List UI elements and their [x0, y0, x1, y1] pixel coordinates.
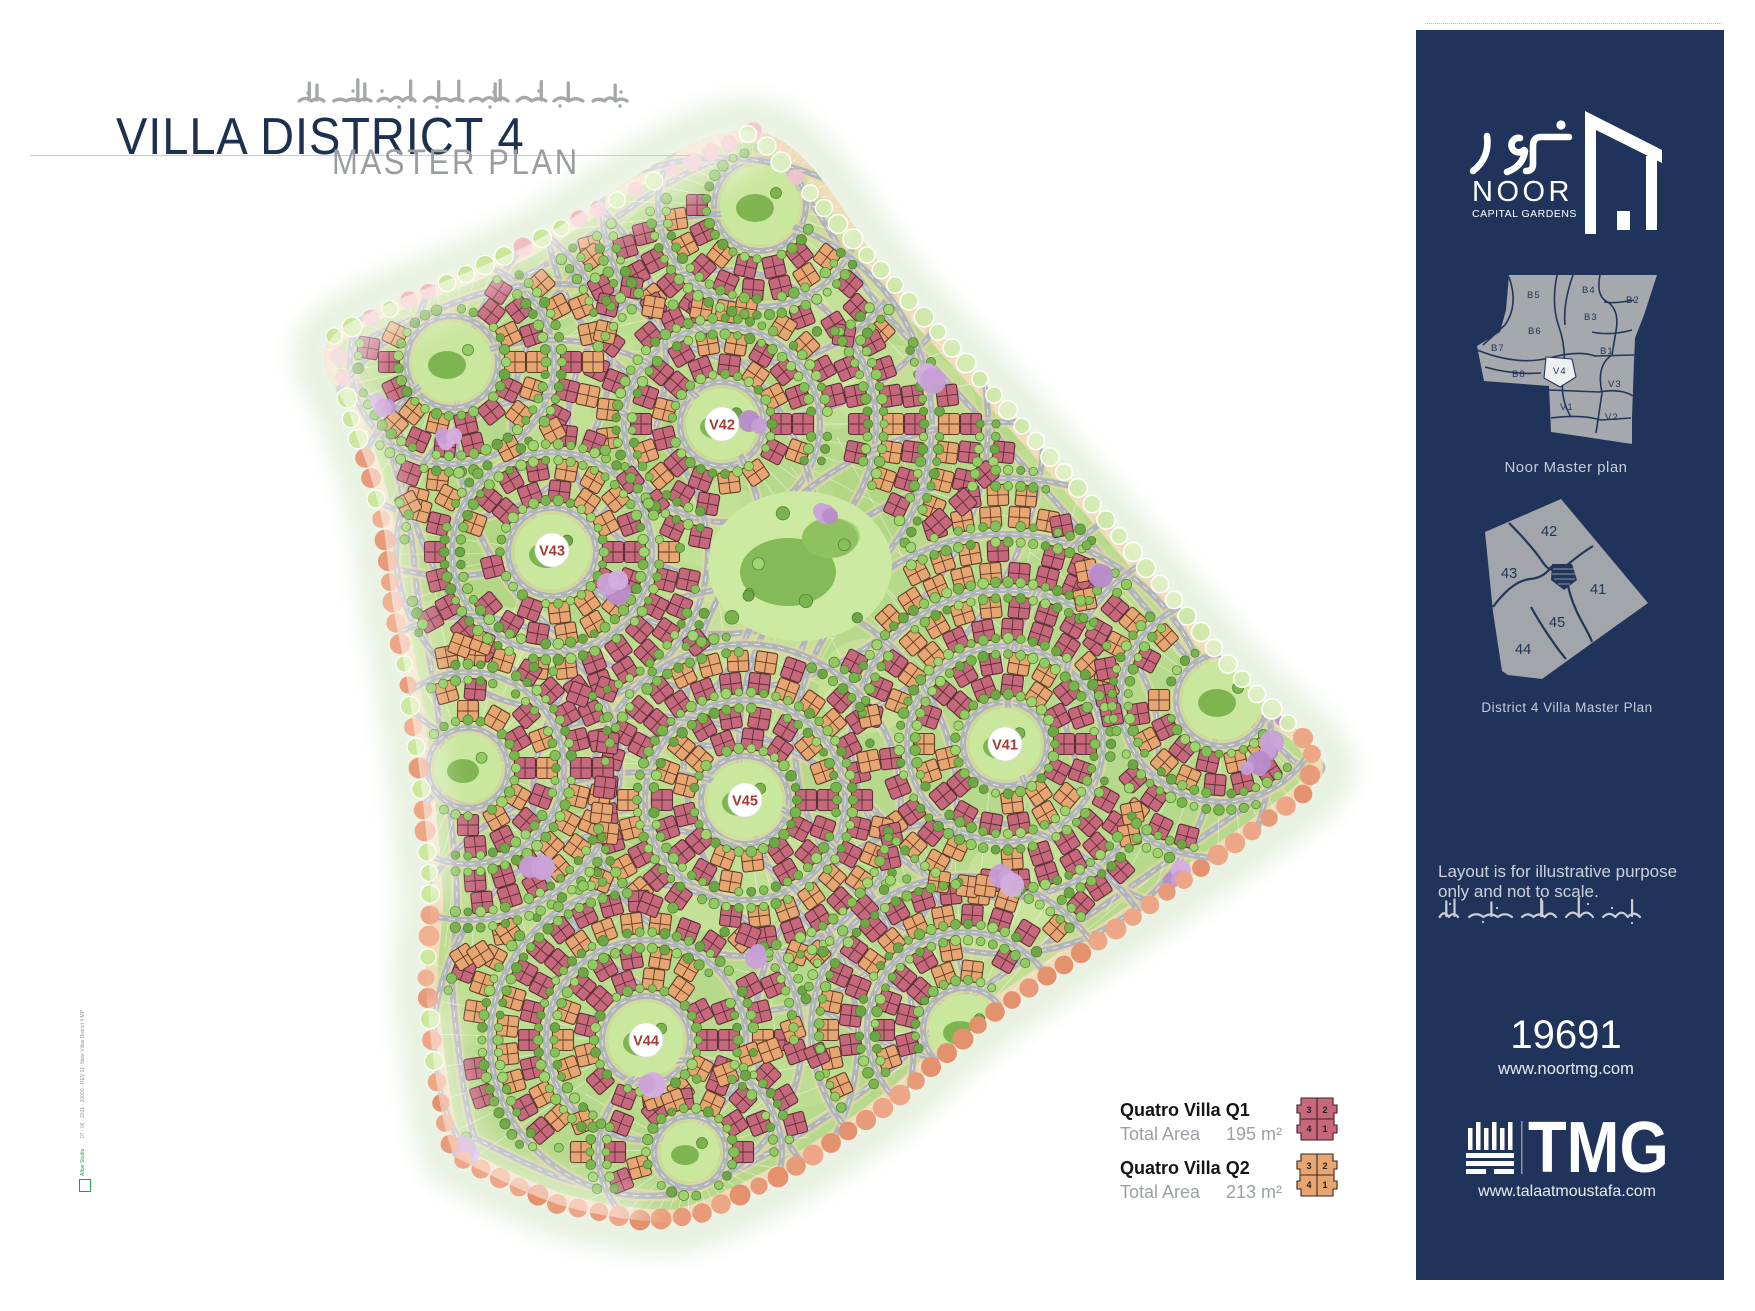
svg-text:41: 41: [1590, 582, 1606, 598]
svg-text:42: 42: [1541, 524, 1557, 540]
svg-text:44: 44: [1515, 642, 1531, 658]
svg-text:43: 43: [1501, 566, 1517, 582]
svg-text:Noor Master plan: Noor Master plan: [1504, 459, 1627, 476]
svg-text:B6: B6: [1528, 326, 1542, 337]
svg-text:B8: B8: [1512, 369, 1526, 380]
svg-text:B4: B4: [1582, 285, 1596, 296]
svg-text:V4: V4: [1553, 366, 1567, 377]
svg-text:B3: B3: [1584, 312, 1598, 323]
svg-text:www.talaatmoustafa.com: www.talaatmoustafa.com: [1477, 1183, 1656, 1200]
svg-text:Layout is for illustrative pur: Layout is for illustrative purpose: [1438, 862, 1677, 881]
svg-text:B7: B7: [1491, 343, 1505, 354]
svg-text:District 4 Villa Master Plan: District 4 Villa Master Plan: [1481, 700, 1652, 715]
svg-text:B1: B1: [1600, 346, 1614, 357]
svg-text:NOOR: NOOR: [1472, 176, 1573, 208]
svg-text:www.noortmg.com: www.noortmg.com: [1497, 1060, 1634, 1078]
svg-text:19691: 19691: [1510, 1013, 1621, 1057]
svg-text:CAPITAL GARDENS: CAPITAL GARDENS: [1472, 208, 1577, 220]
svg-text:TMG: TMG: [1528, 1108, 1669, 1188]
svg-text:V1: V1: [1560, 402, 1574, 413]
svg-text:only and not to scale.: only and not to scale.: [1438, 882, 1599, 901]
svg-text:B5: B5: [1527, 290, 1541, 301]
svg-text:B2: B2: [1626, 295, 1640, 306]
svg-text:V3: V3: [1608, 379, 1622, 390]
svg-text:45: 45: [1549, 615, 1565, 631]
svg-text:V2: V2: [1605, 412, 1619, 423]
